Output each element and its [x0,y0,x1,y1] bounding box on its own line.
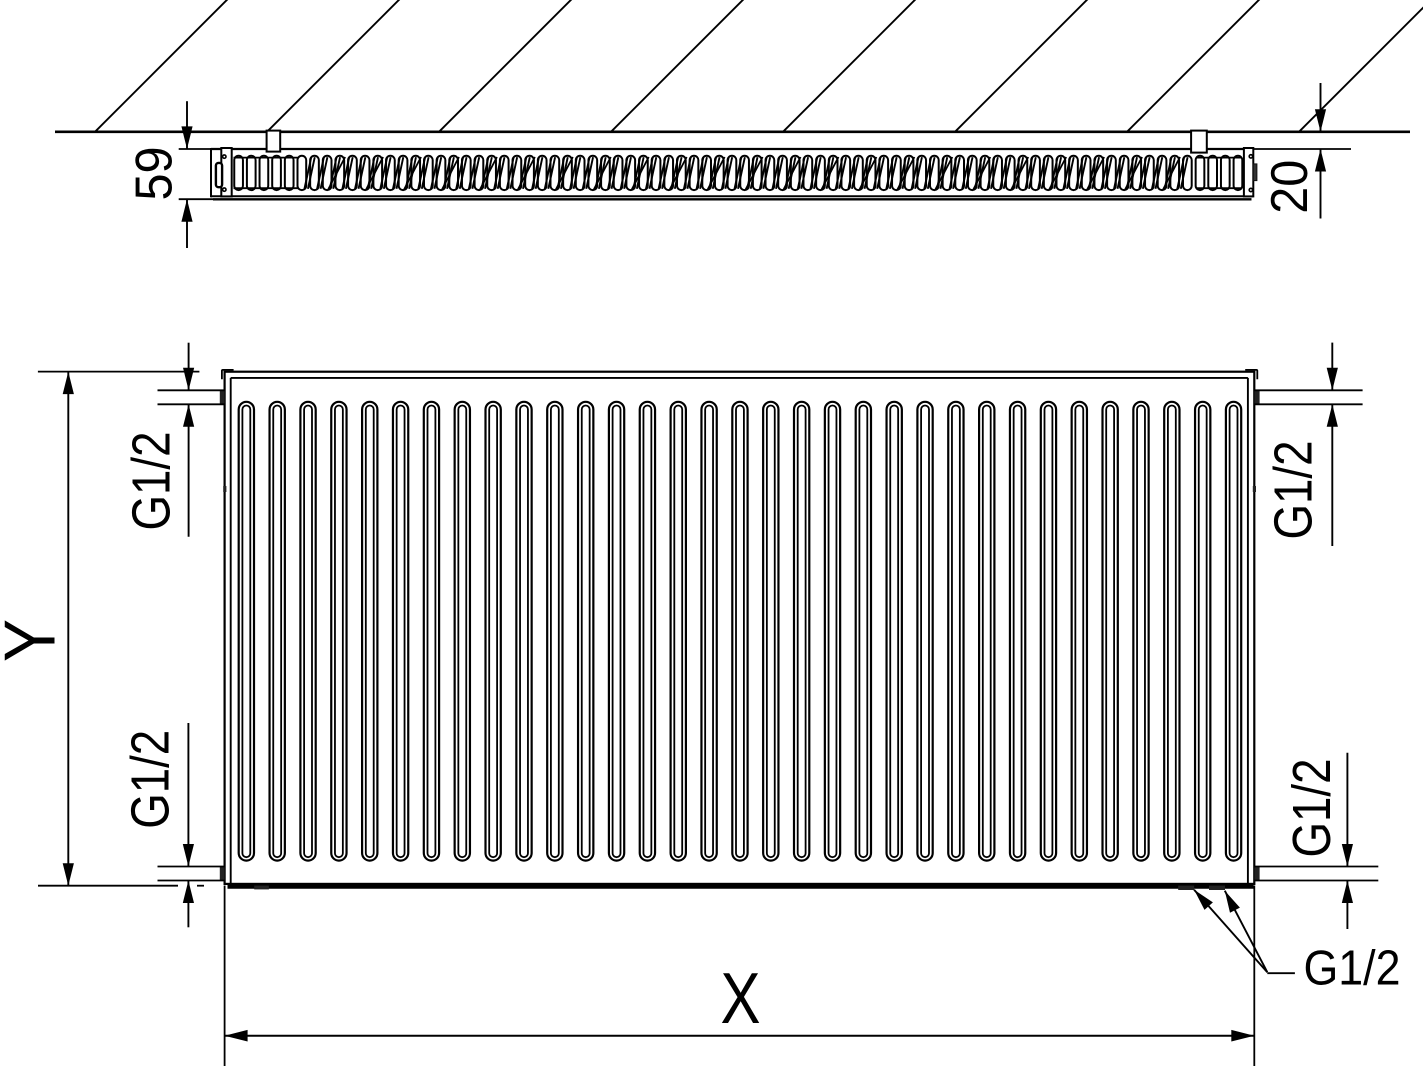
svg-text:G1/2: G1/2 [122,432,182,531]
svg-text:X: X [721,959,761,1039]
svg-text:G1/2: G1/2 [1304,942,1401,996]
svg-text:Y: Y [0,619,70,662]
svg-text:G1/2: G1/2 [121,730,181,829]
svg-text:G1/2: G1/2 [1282,759,1342,858]
svg-text:G1/2: G1/2 [1264,441,1324,540]
svg-text:20: 20 [1261,160,1319,214]
svg-text:59: 59 [126,147,184,201]
